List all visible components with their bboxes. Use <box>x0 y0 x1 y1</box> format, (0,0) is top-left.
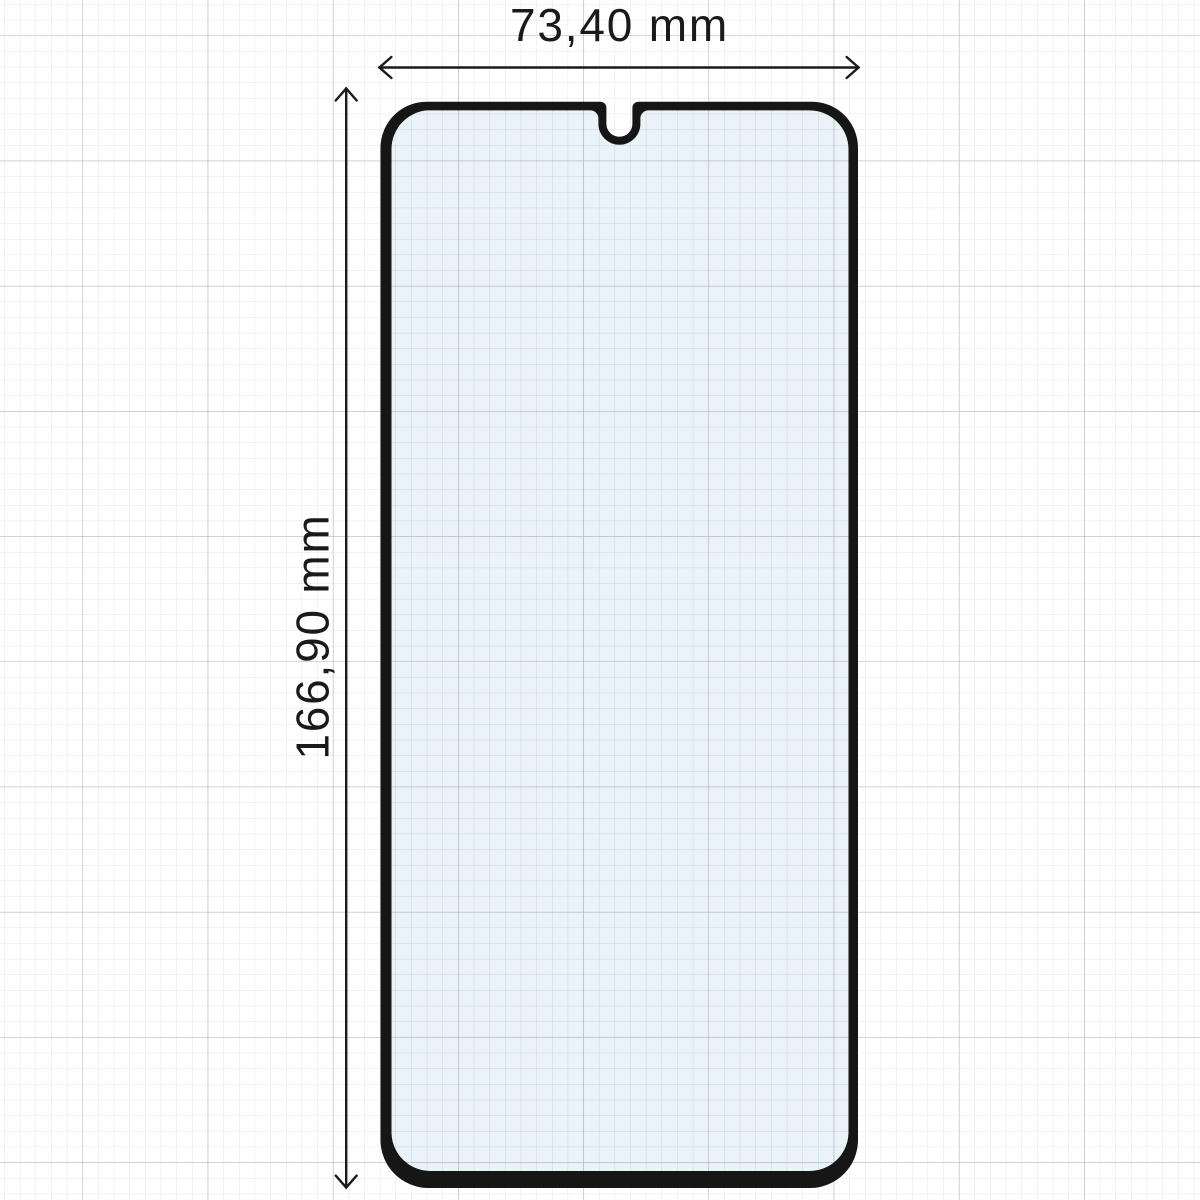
svg-text:166,90 mm: 166,90 mm <box>287 513 339 759</box>
svg-text:73,40 mm: 73,40 mm <box>510 0 729 51</box>
